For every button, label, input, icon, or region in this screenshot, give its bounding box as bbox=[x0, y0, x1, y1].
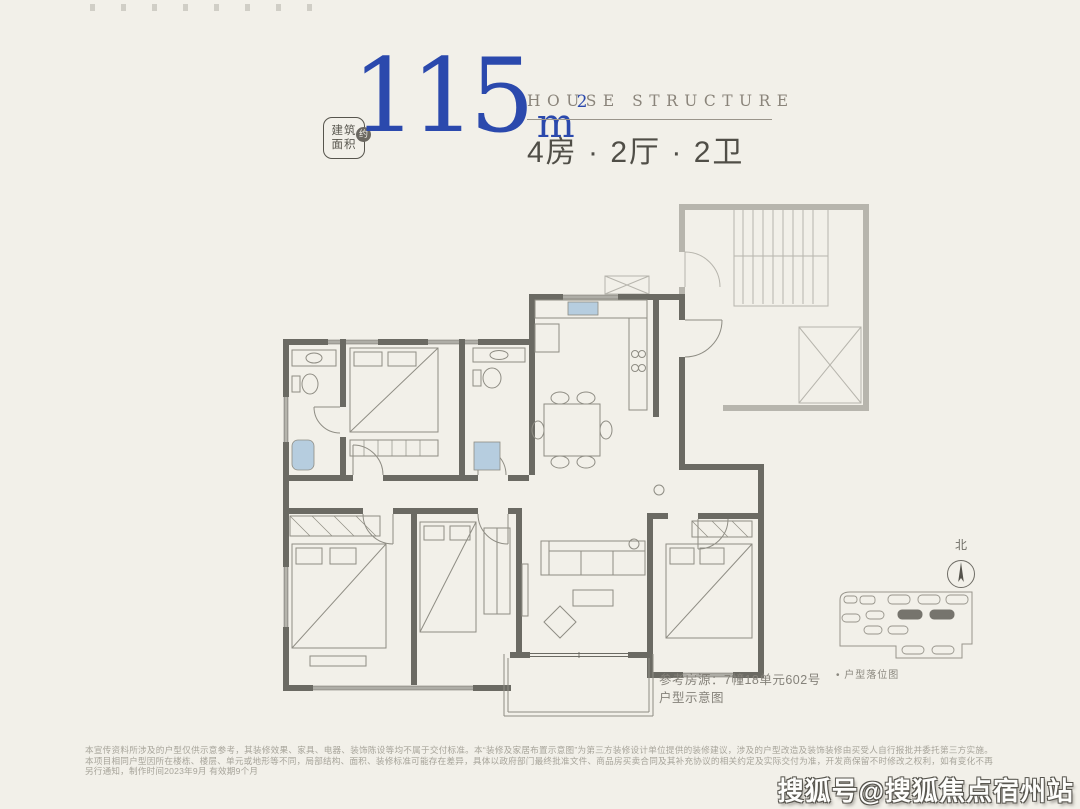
floor-plan-drawing bbox=[268, 192, 878, 722]
duct-box bbox=[605, 276, 649, 294]
subtitle-en: HOUSE STRUCTURE bbox=[527, 92, 772, 110]
shower-icon bbox=[474, 442, 500, 470]
area-number: 115 bbox=[352, 48, 529, 146]
location-diagram-label: • 户型落位图 bbox=[836, 666, 899, 681]
bedroom-3 bbox=[420, 522, 510, 632]
highlighted-buildings bbox=[898, 610, 954, 619]
bathroom-2 bbox=[473, 348, 525, 470]
watermark: 搜狐号@搜狐焦点宿州站 bbox=[778, 771, 1074, 808]
header-divider bbox=[527, 119, 772, 120]
reference-line1: 参考房源：7幢18单元602号 bbox=[659, 671, 821, 689]
living-room bbox=[522, 539, 645, 638]
apartment-walls bbox=[283, 294, 764, 691]
site-location-diagram bbox=[830, 584, 982, 666]
stairs-icon bbox=[734, 206, 828, 306]
building-core bbox=[605, 204, 869, 411]
header-right: HOUSE STRUCTURE 4房 · 2厅 · 2卫 bbox=[527, 92, 772, 171]
bedroom-1 bbox=[350, 348, 438, 456]
reference-note: 参考房源：7幢18单元602号 户型示意图 bbox=[659, 671, 821, 707]
site-buildings bbox=[842, 595, 968, 654]
elevator-icon bbox=[799, 327, 861, 403]
page: 建筑 面积 约 115 m2 HOUSE STRUCTURE 4房 · 2厅 ·… bbox=[0, 0, 1080, 809]
dining-area bbox=[532, 392, 612, 468]
master-bedroom bbox=[290, 516, 386, 666]
north-label: 北 bbox=[944, 536, 978, 553]
sink-icon bbox=[568, 302, 598, 315]
bathtub-icon bbox=[292, 440, 314, 470]
tv-cabinet-icon bbox=[522, 564, 528, 616]
layout-title: 4房 · 2厅 · 2卫 bbox=[527, 127, 772, 171]
crop-artifact-dashes bbox=[90, 4, 312, 11]
balcony bbox=[504, 654, 653, 716]
fridge-icon bbox=[535, 324, 559, 352]
bedroom-4 bbox=[654, 485, 752, 638]
rug-icon bbox=[544, 606, 576, 638]
reference-line2: 户型示意图 bbox=[659, 689, 821, 707]
